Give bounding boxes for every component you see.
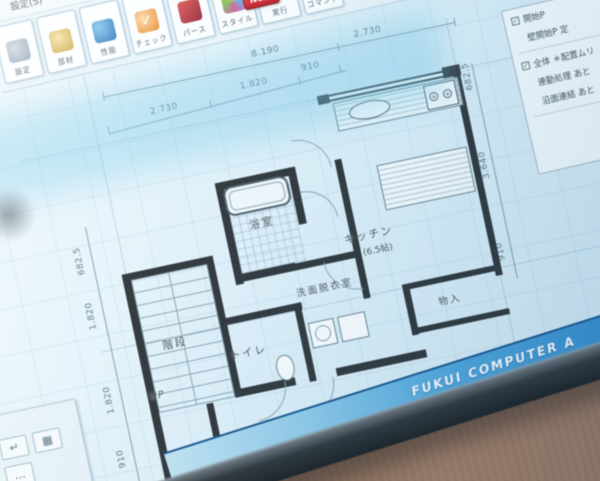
settings-icon (5, 37, 31, 63)
indent-spacer (530, 102, 538, 104)
dim-left-4: 910 (115, 449, 129, 469)
input-options-panel: ✓開始P 壁開始P 定 ✓全体 ＊配置ムリ 連動処理 あと 沿面連結 あと (501, 0, 600, 175)
toolbar-button-parts[interactable]: 部材 (35, 9, 87, 75)
mini-tool-palette: ↵ ▦ … (0, 398, 106, 481)
washing-machine (308, 318, 339, 349)
performance-icon (91, 18, 117, 44)
blank-tool-button[interactable]: … (4, 462, 36, 481)
washer-drum (314, 324, 333, 343)
grid-button[interactable]: ▦ (31, 427, 63, 453)
indent-spacer (516, 39, 524, 41)
toolbar-button-perspective[interactable]: パース (164, 0, 216, 45)
undo-button[interactable]: ↵ (0, 434, 30, 460)
checkbox-checked-icon[interactable]: ✓ (511, 16, 521, 26)
monitor-photo: 8.190 2.730 2.730 1.820 910 682.5 1.820 … (0, 0, 600, 481)
room-label-toilet: トイレ (229, 341, 269, 363)
toolbar-button-performance[interactable]: 性能 (78, 0, 130, 65)
perspective-icon (177, 0, 203, 24)
checkbox-checked-icon[interactable]: ✓ (521, 61, 531, 71)
wall (411, 308, 510, 335)
room-label-storage: 物入 (437, 290, 462, 308)
indent-spacer (526, 84, 534, 86)
wash-basin (337, 311, 370, 342)
toolbar-button-check[interactable]: チェック (121, 0, 173, 55)
parts-icon (48, 28, 74, 54)
style-icon (220, 0, 246, 14)
menu-settings[interactable]: 設定(S) (9, 0, 44, 13)
check-icon (134, 8, 160, 34)
dim-left-3: 1.820 (102, 385, 118, 415)
wall (336, 349, 428, 376)
reflection-smudge (0, 186, 34, 244)
